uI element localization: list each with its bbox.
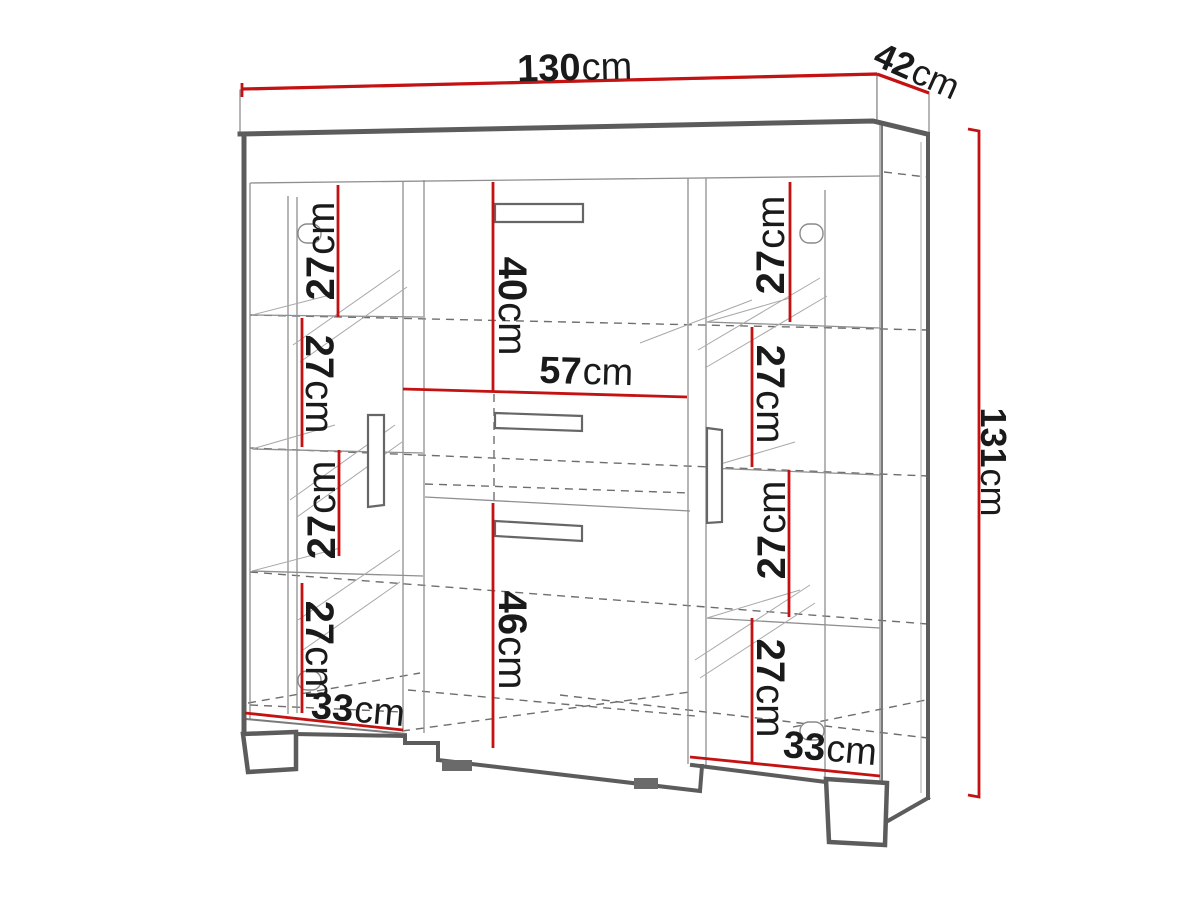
center-divider-front-edge [425, 497, 690, 511]
left-shelf-3-front-edge [252, 571, 423, 576]
right-side-panel-face [880, 121, 929, 822]
glass-streak [640, 300, 752, 343]
plinth-foot [442, 760, 472, 771]
center-divider-hidden-edge [425, 484, 690, 493]
right-door-handle [707, 428, 722, 523]
plinth-foot [634, 778, 658, 789]
left-shelf-width-label: 33cm [309, 685, 406, 735]
right-shelf-width-label: 33cm [781, 724, 878, 774]
right-leg [826, 779, 887, 845]
left-section-1-label: 27cm [299, 202, 343, 301]
hidden-edges [248, 172, 928, 738]
hinge-icon [800, 224, 823, 243]
bottom-drawer-handle [495, 521, 582, 541]
top-drawer-handle [495, 204, 583, 222]
left-section-3-label: 27cm [300, 461, 344, 560]
interior-top-edge [250, 176, 880, 183]
carcass-bottom-left-edge [296, 734, 438, 760]
right-shelf-3-front-edge [707, 618, 880, 628]
left-leg [243, 732, 296, 772]
right-section-2-label: 27cm [748, 345, 792, 444]
plinth-bottom-edge [438, 760, 702, 791]
height-label: 131cm [973, 407, 1014, 516]
middle-drawer-handle [495, 413, 582, 431]
right-section-1-label: 27cm [749, 196, 793, 295]
left-shelf-2-front-edge [252, 449, 423, 453]
glass-shelf-1-hidden-edge [250, 315, 928, 330]
cabinet-dimension-drawing: 130cm 42cm 131cm 27cm 27cm 27cm 27cm 27c… [0, 0, 1200, 900]
left-door-handle [368, 415, 384, 507]
right-section-3-label: 27cm [750, 481, 794, 580]
center-width-label: 57cm [539, 350, 634, 394]
width-label: 130cm [517, 46, 633, 91]
right-shelf-2-front-edge [707, 468, 880, 475]
right-section-4-label: 27cm [748, 639, 792, 738]
diagram-canvas: 130cm 42cm 131cm 27cm 27cm 27cm 27cm 27c… [0, 0, 1200, 900]
center-top-height-label: 40cm [490, 257, 534, 356]
plinth-depth-hidden-edge-2 [408, 690, 695, 716]
middle-shelf-hidden-edge [250, 448, 928, 476]
left-section-2-label: 27cm [297, 335, 341, 434]
center-bottom-height-label: 46cm [490, 591, 534, 690]
